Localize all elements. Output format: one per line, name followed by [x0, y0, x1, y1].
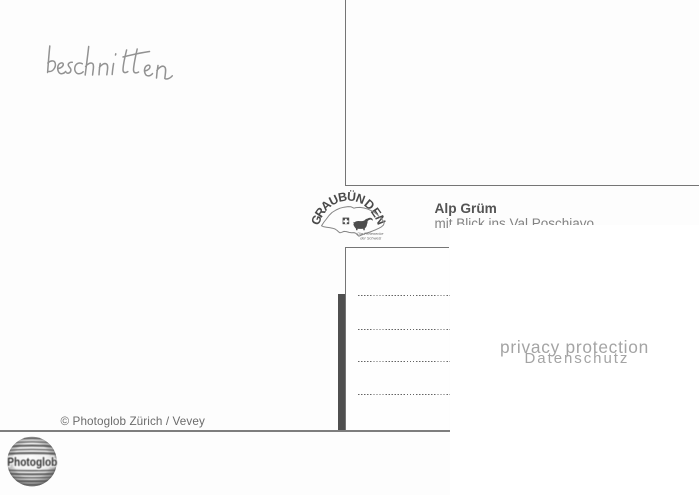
- svg-text:der Schweiz: der Schweiz: [360, 235, 381, 240]
- svg-text:Photoglob: Photoglob: [7, 455, 57, 469]
